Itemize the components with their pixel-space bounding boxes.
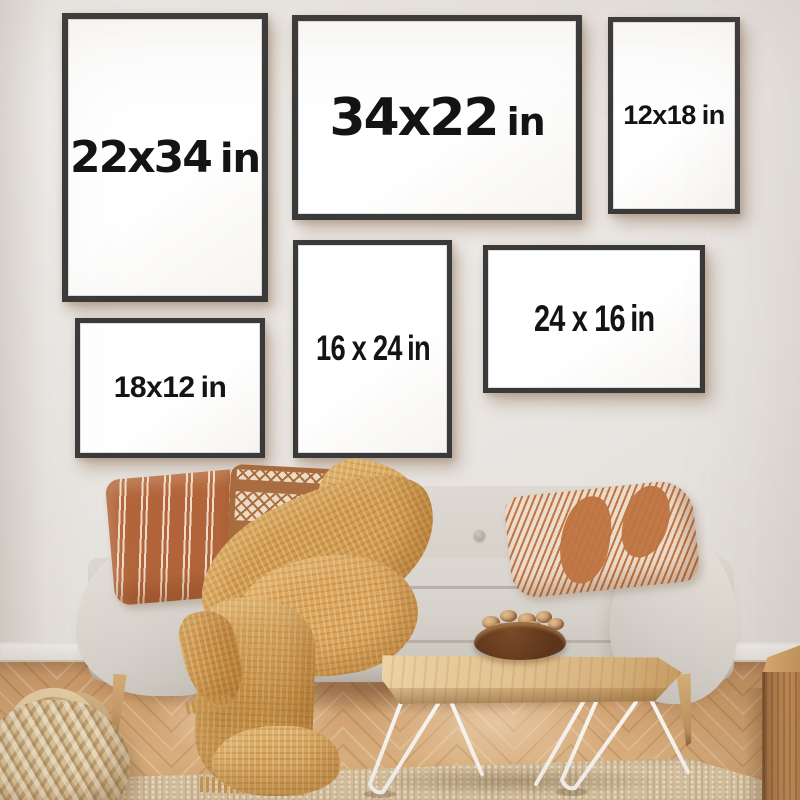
throw-blanket-floor-pool xyxy=(212,726,340,796)
frame-size-label: 12x18 in xyxy=(623,100,725,131)
frame-34x22: 34x22 in xyxy=(292,15,582,220)
frame-24x16: 24 x 16 in xyxy=(483,245,705,393)
nut-bowl xyxy=(474,622,566,660)
unit-text: in xyxy=(507,100,545,144)
frame-size-label: 34x22 in xyxy=(329,88,544,148)
wall-left-shading xyxy=(0,0,46,660)
frame-size-label: 24 x 16 in xyxy=(534,298,654,340)
frame-size-label: 18x12 in xyxy=(114,371,227,405)
size-text: 18x12 xyxy=(114,371,195,405)
frame-16x24: 16 x 24 in xyxy=(293,240,452,458)
frame-18x12: 18x12 in xyxy=(75,318,265,458)
size-text: 16 x 24 xyxy=(316,329,402,369)
unit-text: in xyxy=(407,329,430,369)
frame-22x34: 22x34 in xyxy=(62,13,268,302)
unit-text: in xyxy=(702,100,725,131)
size-text: 24 x 16 xyxy=(534,298,625,340)
frame-size-label: 16 x 24 in xyxy=(316,329,430,369)
living-room-mockup-photo: 22x34 in 34x22 in 12x18 in 16 x 24 in 24… xyxy=(0,0,800,800)
chevron-pillow xyxy=(503,478,701,599)
pillow-leaf-motif xyxy=(556,494,614,586)
frame-12x18: 12x18 in xyxy=(608,17,740,214)
nut xyxy=(500,610,517,622)
wood-cube-side-table xyxy=(762,672,800,800)
size-text: 12x18 xyxy=(623,100,696,131)
size-text: 34x22 xyxy=(329,88,497,148)
unit-text: in xyxy=(630,298,654,340)
size-text: 22x34 xyxy=(70,132,211,183)
sofa-tufting-button xyxy=(474,530,485,541)
hairpin-table-legs xyxy=(350,688,710,800)
unit-text: in xyxy=(220,136,260,182)
pillow-leaf-motif xyxy=(617,482,674,562)
unit-text: in xyxy=(201,371,227,405)
frame-size-label: 22x34 in xyxy=(70,132,260,183)
